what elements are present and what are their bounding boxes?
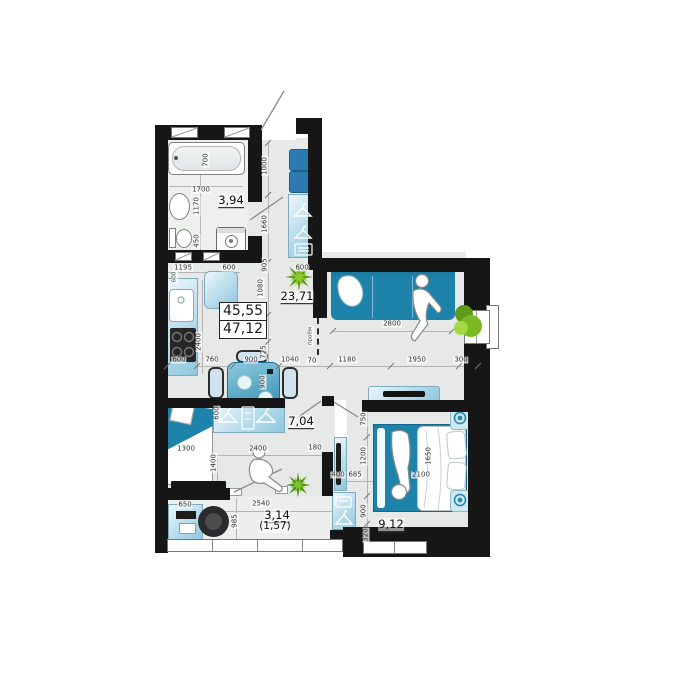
total-area-box: 45,55 47,12 bbox=[219, 302, 267, 339]
dim-bed-900: 900 bbox=[361, 503, 368, 518]
balcony-wardrobe bbox=[332, 492, 356, 530]
bedroom-window bbox=[363, 541, 427, 554]
dim-desk-650: 650 bbox=[177, 502, 192, 509]
dim-bottom-760: 760 bbox=[204, 357, 219, 364]
wall-pillar bbox=[313, 272, 327, 318]
toilet-bowl bbox=[176, 229, 192, 248]
dim-kids-2400: 2400 bbox=[248, 446, 268, 453]
dim-bottom-900: 900 bbox=[243, 357, 258, 364]
dim-bottom-1040: 1040 bbox=[280, 357, 300, 364]
desk-monitor bbox=[176, 511, 196, 519]
dim-counter-600: 600 bbox=[172, 271, 178, 284]
dim-bath-1170: 1170 bbox=[194, 196, 201, 216]
balcony-door-track-2 bbox=[275, 486, 288, 494]
dim-bottom-300: 300 bbox=[453, 357, 468, 364]
bed-pillow-1 bbox=[446, 430, 467, 460]
wall-kids-top bbox=[167, 398, 285, 408]
table-decor bbox=[267, 369, 273, 374]
living-window bbox=[464, 310, 490, 344]
dim-bottom-1180: 1180 bbox=[337, 357, 357, 364]
entrance-opening bbox=[262, 125, 296, 140]
floor-plan: 45,55 47,12 3,94 23,71 7,04 9,12 3,14 (1… bbox=[0, 0, 700, 700]
dim-bottom-1950: 1950 bbox=[407, 357, 427, 364]
bed-pillow-2 bbox=[446, 461, 467, 490]
living-window-pane-line bbox=[476, 311, 477, 343]
dim-bottom-600: 600 bbox=[171, 357, 186, 364]
balcony-door-track-1 bbox=[229, 488, 242, 496]
dining-chair-right bbox=[282, 367, 298, 399]
bathroom-sink bbox=[169, 193, 190, 220]
dim-balcony-985: 985 bbox=[232, 513, 239, 528]
dim-bed-1200: 1200 bbox=[361, 446, 368, 466]
bedroom-window-mullion bbox=[394, 542, 395, 553]
wall-bedroom-right bbox=[468, 404, 490, 530]
dining-chair-left bbox=[208, 367, 224, 399]
dim-kids-1400: 1400 bbox=[211, 453, 218, 473]
wall-right-mid bbox=[464, 344, 490, 404]
dim-bed-685: 685 bbox=[347, 472, 362, 479]
washing-machine-drum bbox=[225, 235, 238, 248]
bathroom-window-1 bbox=[171, 127, 198, 138]
dim-bed-750: 750 bbox=[361, 411, 368, 426]
dim-entry-1660: 1660 bbox=[262, 214, 269, 234]
area-label-hall: 7,04 bbox=[288, 415, 314, 429]
dim-entry-1000: 1000 bbox=[262, 156, 269, 176]
desk-chair-seat bbox=[205, 513, 222, 530]
dim-sofa-2800: 2800 bbox=[382, 321, 402, 328]
dim-kids-ward-600: 600 bbox=[214, 405, 221, 420]
opening-label: проём bbox=[308, 326, 314, 346]
dim-wardrobe-600: 600 bbox=[294, 265, 309, 272]
wall-bedroom-top bbox=[362, 400, 468, 412]
balcony-window-mullion-1 bbox=[212, 540, 213, 551]
dim-balcony-2540: 2540 bbox=[251, 501, 271, 508]
dim-entry-905: 905 bbox=[262, 257, 269, 272]
dim-tub-width: 700 bbox=[203, 152, 210, 167]
wall-entry-right bbox=[308, 134, 322, 270]
wall-bathroom-right-lower bbox=[248, 236, 262, 252]
washing-machine-panel bbox=[217, 228, 245, 233]
wall-hall-post bbox=[322, 396, 334, 406]
dim-tub-length: 1700 bbox=[191, 187, 211, 194]
dim-washer-450: 450 bbox=[194, 233, 201, 248]
dim-chain-1080: 1080 bbox=[258, 278, 265, 298]
sofa-cushion-line-2 bbox=[412, 276, 413, 318]
dim-line-counter-v bbox=[202, 280, 203, 374]
balcony-window-mullion-3 bbox=[302, 540, 303, 551]
wall-right-upper bbox=[464, 258, 490, 310]
living-tv bbox=[383, 391, 425, 397]
desk-keyboard bbox=[179, 523, 196, 534]
dim-counter-2400: 2400 bbox=[196, 332, 203, 352]
bathroom-window-2 bbox=[224, 127, 250, 138]
area-label-bedroom: 9,12 bbox=[378, 518, 404, 532]
dim-bed-1650: 1650 bbox=[426, 446, 433, 466]
dim-bottom-70: 70 bbox=[307, 358, 318, 365]
sofa-cushion-line-1 bbox=[372, 276, 373, 318]
dim-table-900: 900 bbox=[260, 374, 267, 389]
dim-kids-1300: 1300 bbox=[176, 446, 196, 453]
area-label-living: 23,71 bbox=[281, 290, 314, 304]
wall-kids-bottom bbox=[167, 488, 230, 500]
dim-fridge-600: 600 bbox=[221, 265, 236, 272]
wall-living-top bbox=[313, 258, 466, 272]
dim-chain-725: 725 bbox=[261, 344, 268, 359]
total-area-upper: 45,55 bbox=[220, 303, 266, 320]
dim-line-sofa bbox=[333, 331, 452, 332]
dim-bed-2100: 2100 bbox=[411, 472, 431, 479]
total-area-lower: 47,12 bbox=[220, 320, 266, 338]
dim-kids-180: 180 bbox=[307, 445, 322, 452]
dim-panel-400: 400 bbox=[330, 472, 345, 479]
dim-bed-320: 320 bbox=[363, 527, 370, 542]
vent-shaft-2 bbox=[203, 252, 220, 261]
kitchen-sink bbox=[169, 289, 194, 322]
balcony-window-mullion-2 bbox=[257, 540, 258, 551]
area-label-balcony-half: (1,57) bbox=[259, 521, 291, 533]
balcony-window-band bbox=[167, 539, 343, 552]
vent-shaft-1 bbox=[175, 252, 192, 261]
area-label-bathroom: 3,94 bbox=[218, 194, 244, 208]
opening-dashed-line bbox=[317, 318, 319, 355]
bathtub-faucet bbox=[174, 156, 178, 160]
bed-sheet-strip bbox=[377, 428, 385, 508]
bedroom-tv bbox=[336, 443, 341, 485]
bedroom-door-opening bbox=[346, 400, 362, 412]
wall-entry-top-corner bbox=[296, 118, 322, 134]
dim-line-bedroom-v bbox=[367, 407, 368, 547]
toilet-tank bbox=[169, 228, 176, 248]
plate-1 bbox=[237, 375, 252, 390]
